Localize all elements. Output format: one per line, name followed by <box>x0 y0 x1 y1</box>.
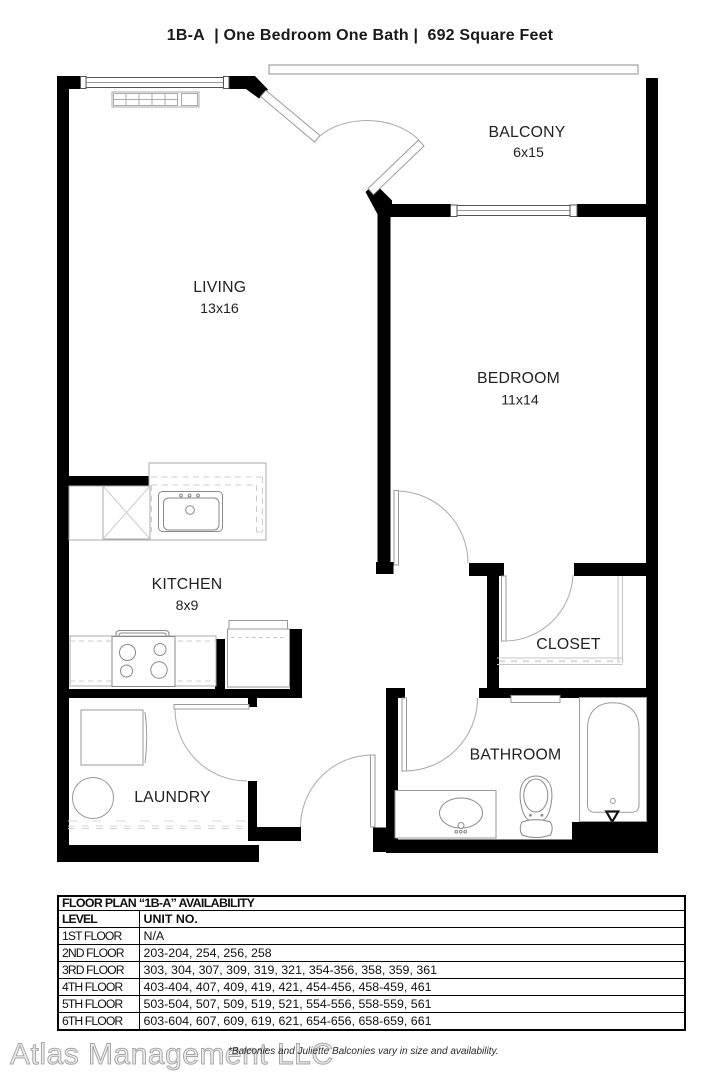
svg-text:LAUNDRY: LAUNDRY <box>134 789 211 806</box>
svg-text:8x9: 8x9 <box>176 598 199 614</box>
svg-text:13x16: 13x16 <box>200 301 239 317</box>
svg-text:LIVING: LIVING <box>193 279 246 296</box>
svg-text:11x14: 11x14 <box>501 393 539 409</box>
svg-text:BATHROOM: BATHROOM <box>470 747 562 764</box>
svg-text:6x15: 6x15 <box>513 145 544 161</box>
svg-text:BALCONY: BALCONY <box>489 124 566 141</box>
svg-text:BEDROOM: BEDROOM <box>477 370 560 387</box>
svg-text:KITCHEN: KITCHEN <box>152 576 223 593</box>
svg-text:CLOSET: CLOSET <box>536 636 601 653</box>
